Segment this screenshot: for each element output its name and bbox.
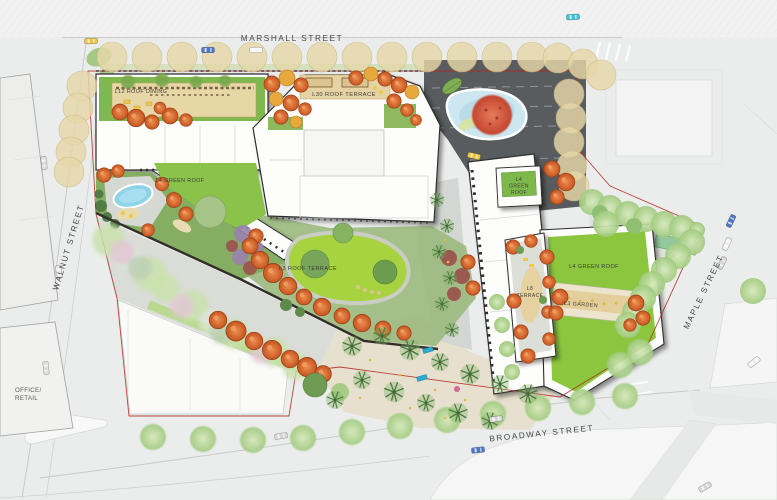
car-white	[250, 47, 263, 53]
car-yellow	[84, 38, 97, 44]
label-l30-roof-terrace: L30 ROOF TERRACE	[312, 92, 376, 98]
label-l4-green-roof-west: L4 GREEN ROOF	[156, 178, 205, 184]
label-office-retail: OFFICE/ RETAIL	[15, 387, 42, 402]
maple-east-tree	[740, 278, 766, 304]
site-plan: MARSHALL STREET WALNUT STREET MAPLE STRE…	[0, 0, 777, 500]
label-l4-green-roof-east: L4 GREEN ROOF	[569, 264, 619, 270]
svg-text:TERRACE: TERRACE	[517, 293, 544, 299]
car-blue	[471, 447, 485, 454]
label-l3-roof-terrace: L3 ROOF TERRACE	[279, 266, 337, 272]
svg-text:RETAIL: RETAIL	[15, 395, 38, 402]
pond	[447, 89, 527, 139]
svg-text:OFFICE/: OFFICE/	[15, 387, 42, 394]
car-blue	[202, 47, 215, 53]
svg-text:GREEN: GREEN	[509, 184, 529, 190]
svg-text:L8: L8	[527, 286, 533, 292]
svg-text:L4: L4	[516, 177, 522, 183]
street-label-marshall: MARSHALL STREET	[241, 34, 343, 43]
coral-tree	[472, 95, 512, 135]
svg-text:ROOF: ROOF	[511, 190, 527, 196]
label-l12-roof-dining: L12 ROOF DINING	[115, 89, 167, 95]
car-gray	[41, 156, 48, 170]
car-cyan	[566, 14, 579, 20]
site-plan-canvas: MARSHALL STREET WALNUT STREET MAPLE STRE…	[0, 0, 777, 500]
car-gray	[43, 361, 50, 375]
